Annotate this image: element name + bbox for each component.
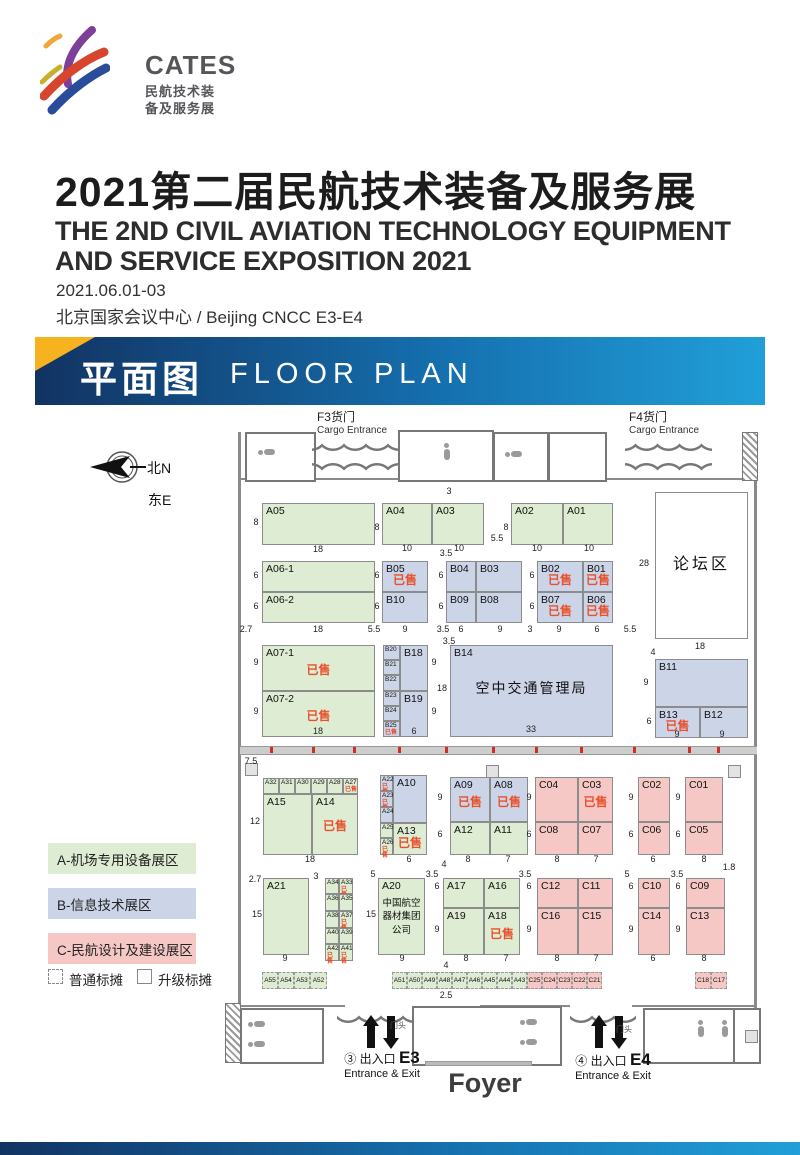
booth-label: C21 — [588, 973, 601, 984]
booth-label: A50 — [408, 973, 421, 984]
fire-marker — [717, 747, 720, 753]
dimension-label: 6 — [406, 854, 411, 864]
dimension-label: 9 — [556, 624, 561, 634]
dimension-label: 6 — [646, 716, 651, 726]
booth-C24: C24 — [542, 972, 557, 989]
dimension-label: 10 — [532, 543, 542, 553]
dimension-label: 8 — [374, 522, 379, 532]
banner-title-cn: 平面图 — [80, 349, 203, 403]
booth-A19: A19 — [443, 908, 484, 955]
booth-A27: A27已售 — [343, 778, 358, 794]
dimension-label: 1.8 — [723, 862, 736, 872]
booth-A40: A40 — [325, 928, 339, 944]
sold-badge: 已售 — [579, 796, 612, 808]
booth-A04: A04 — [382, 503, 432, 545]
booth-label: A03 — [433, 504, 483, 517]
booth-label: A12 — [451, 823, 489, 836]
fire-marker — [688, 747, 691, 753]
compass-north-label: 北N — [147, 458, 171, 478]
dimension-label: 9 — [526, 924, 531, 934]
booth-B01: B01已售 — [583, 561, 613, 592]
person-icon — [505, 450, 523, 458]
booth-label: B24 — [384, 707, 399, 715]
booth-A20: A20中国航空器材集团公司 — [378, 878, 425, 955]
booth-B18: B18 — [400, 645, 428, 691]
booth-A28: A28 — [327, 778, 343, 794]
dimension-label: 3.5 — [426, 869, 439, 879]
booth-label: C12 — [538, 879, 577, 892]
foyer-divider — [425, 1061, 532, 1066]
booth-A15: A15 — [263, 794, 312, 855]
logo-brand: CATES — [145, 52, 236, 78]
booth-A41: A41已售 — [339, 944, 353, 961]
dimension-label: 6 — [675, 829, 680, 839]
booth-label: B18 — [401, 646, 427, 659]
booth-label: C15 — [579, 909, 612, 922]
booth-B04: B04 — [446, 561, 476, 592]
booth-A02: A02 — [511, 503, 563, 545]
dimension-label: 12 — [250, 816, 260, 826]
booth-C23: C23 — [557, 972, 572, 989]
booth-B02: B02已售 — [537, 561, 583, 592]
booth-B21: B21 — [383, 660, 400, 675]
booth-label: A40 — [326, 929, 338, 937]
booth-label: A43 — [513, 973, 526, 984]
f3-cargo-door-arcs — [312, 457, 398, 480]
f3-cargo-door-arcs — [312, 434, 398, 457]
booth-A44: A44 — [497, 972, 512, 989]
booth-label: C07 — [579, 823, 612, 836]
person-icon — [697, 1020, 705, 1038]
dimension-label: 5.5 — [368, 624, 381, 634]
booth-C11: C11 — [578, 878, 613, 908]
dimension-label: 6 — [526, 829, 531, 839]
booth-B10: B10 — [382, 592, 428, 623]
booth-label: A27 — [344, 779, 357, 787]
dimension-label: 15 — [366, 909, 376, 919]
booth-B08: B08 — [476, 592, 522, 623]
dimension-label: 6 — [526, 881, 531, 891]
booth-label: A07-2 — [263, 692, 374, 705]
booth-label: A04 — [383, 504, 431, 517]
booth-label: C24 — [543, 973, 556, 984]
wall-bottom-hatch — [225, 1003, 241, 1063]
dimension-label: 7 — [593, 854, 598, 864]
sold-badge: 已售 — [394, 837, 426, 849]
dimension-label: 8 — [463, 953, 468, 963]
booth-label: A18 — [485, 909, 519, 922]
legend-upgraded-booth-label: 升级标摊 — [158, 969, 212, 989]
dimension-label: 6 — [529, 570, 534, 580]
dimension-label: 7 — [503, 953, 508, 963]
dimension-label: 9 — [628, 792, 633, 802]
booth-label: C16 — [538, 909, 577, 922]
wall-right — [754, 480, 757, 1062]
booth-C25: C25 — [527, 972, 542, 989]
dimension-label: 3.5 — [440, 548, 453, 558]
booth-B06: B06已售 — [583, 592, 613, 623]
dimension-label: 18 — [313, 624, 323, 634]
booth-论坛区: 论坛区 — [655, 492, 748, 639]
dimension-label: 6 — [434, 881, 439, 891]
legend-upgraded-booth-swatch — [137, 969, 152, 984]
booth-B22: B22 — [383, 675, 400, 691]
booth-label: A45 — [483, 973, 496, 984]
dimension-label: 8 — [701, 854, 706, 864]
booth-A29: A29 — [311, 778, 327, 794]
booth-label: A37 — [340, 912, 352, 920]
booth-C10: C10 — [638, 878, 670, 908]
fire-marker — [492, 747, 495, 753]
booth-C02: C02 — [638, 777, 670, 822]
booth-label: A42 — [326, 945, 338, 953]
booth-label: A44 — [498, 973, 511, 984]
booth-label: A25 — [381, 824, 392, 832]
f3-cargo-label: F3货门Cargo Entrance — [317, 408, 387, 436]
booth-A17: A17 — [443, 878, 484, 908]
dimension-label: 18 — [695, 641, 705, 651]
dimension-label: 9 — [431, 657, 436, 667]
booth-A48: A48 — [437, 972, 452, 989]
dimension-label: 2.7 — [240, 624, 253, 634]
room-bottom-left — [240, 1008, 324, 1064]
dimension-label: 5 — [624, 869, 629, 879]
booth-C21: C21 — [587, 972, 602, 989]
booth-B23: B23 — [383, 691, 400, 706]
compass-east-label: 东E — [148, 490, 171, 510]
person-icon — [520, 1018, 538, 1026]
cates-logo: CATES 民航技术装 备及服务展 — [40, 24, 360, 119]
dimension-label: 18 — [313, 544, 323, 554]
booth-A12: A12 — [450, 822, 490, 855]
dimension-label: 7.5 — [245, 756, 258, 766]
sold-badge: 已售 — [485, 928, 519, 940]
person-icon — [443, 443, 451, 461]
booth-B09: B09 — [446, 592, 476, 623]
fire-marker — [398, 747, 401, 753]
dimension-label: 9 — [497, 624, 502, 634]
sold-badge: 已售 — [313, 820, 357, 832]
booth-label: C17 — [712, 973, 726, 984]
booth-label: C10 — [639, 879, 669, 892]
logo-swoosh-icon — [40, 24, 110, 119]
booth-label: B04 — [447, 562, 475, 575]
booth-label: B11 — [656, 660, 747, 673]
dimension-label: 3.5 — [443, 636, 456, 646]
dimension-label: 6 — [650, 854, 655, 864]
sold-badge: 已售 — [383, 574, 427, 586]
fire-marker — [633, 747, 636, 753]
booth-label: A33 — [340, 879, 352, 887]
wall-mid-divider — [240, 746, 757, 755]
booth-label: A41 — [340, 945, 352, 953]
dimension-label: 6 — [650, 953, 655, 963]
booth-label: A05 — [263, 504, 374, 517]
booth-A14: A14已售 — [312, 794, 358, 855]
booth-A45: A45 — [482, 972, 497, 989]
booth-B24: B24 — [383, 706, 400, 721]
booth-label: A09 — [451, 778, 489, 791]
booth-label: C02 — [639, 778, 669, 791]
booth-label: A17 — [444, 879, 483, 892]
dimension-label: 8 — [554, 854, 559, 864]
sold-badge: 已售 — [340, 953, 352, 966]
dimension-label: 6 — [675, 881, 680, 891]
dimension-label: 9 — [675, 924, 680, 934]
booth-label: A35 — [340, 895, 352, 903]
booth-company-name: 空中交通管理局 — [453, 678, 610, 698]
banner-title-en: FLOOR PLAN — [230, 358, 474, 391]
dimension-label: 5.5 — [491, 533, 504, 543]
booth-label: B12 — [701, 708, 747, 721]
booth-label: A36 — [326, 895, 338, 903]
event-venue: 北京国家会议中心 / Beijing CNCC E3-E4 — [56, 303, 363, 328]
booth-A36: A36 — [325, 894, 339, 911]
booth-A31: A31 — [279, 778, 295, 794]
fire-marker — [580, 747, 583, 753]
dimension-label: 3.5 — [437, 624, 450, 634]
dimension-label: 7 — [593, 953, 598, 963]
page-subtitle-2: AND SERVICE EXPOSITION 2021 — [55, 246, 795, 277]
booth-A47: A47 — [452, 972, 467, 989]
booth-B25: B25已售 — [383, 721, 400, 737]
dimension-label: 18 — [313, 726, 323, 736]
booth-label: C05 — [686, 823, 722, 836]
booth-A05: A05 — [262, 503, 375, 545]
booth-label: B20 — [384, 646, 399, 654]
dimension-label: 18 — [305, 854, 315, 864]
floor-plan-poster: CATES 民航技术装 备及服务展 2021第二届民航技术装备及服务展 THE … — [0, 0, 800, 1155]
sold-badge: 已售 — [384, 730, 399, 736]
booth-label: A22 — [381, 776, 392, 784]
booth-label: A01 — [564, 504, 612, 517]
booth-label: A06-2 — [263, 593, 374, 606]
booth-label: C22 — [573, 973, 586, 984]
booth-A52: A52 — [310, 972, 327, 989]
booth-label: C01 — [686, 778, 722, 791]
booth-A32: A32 — [263, 778, 279, 794]
booth-label: C03 — [579, 778, 612, 791]
booth-A51: A51 — [392, 972, 407, 989]
booth-A46: A46 — [467, 972, 482, 989]
booth-C22: C22 — [572, 972, 587, 989]
dimension-label: 9 — [643, 677, 648, 687]
booth-A24: A24 — [380, 807, 393, 823]
booth-A03: A03 — [432, 503, 484, 545]
booth-B11: B11 — [655, 659, 748, 707]
booth-label: A26 — [381, 839, 392, 847]
e4-door-head-label: 门头 — [616, 1024, 632, 1035]
dimension-label: 3.5 — [519, 869, 532, 879]
fire-marker — [445, 747, 448, 753]
dimension-label: 6 — [374, 601, 379, 611]
fire-marker — [270, 747, 273, 753]
dimension-label: 4 — [441, 859, 446, 869]
dimension-label: 3 — [313, 871, 318, 881]
sold-badge: 已售 — [451, 796, 489, 808]
dimension-label: 10 — [584, 543, 594, 553]
booth-label: C23 — [558, 973, 571, 984]
legend-zone-a: A-机场专用设备展区 — [48, 843, 196, 874]
booth-A23: A23已售 — [380, 791, 393, 807]
booth-label: B10 — [383, 593, 427, 606]
booth-C09: C09 — [686, 878, 725, 908]
booth-C06: C06 — [638, 822, 670, 855]
person-icon — [721, 1020, 729, 1038]
e3-door-head-label: 门头 — [390, 1020, 406, 1031]
dimension-label: 7 — [505, 854, 510, 864]
room-top-1 — [245, 432, 316, 482]
wall-bottom-3 — [632, 1005, 757, 1007]
booth-label: B22 — [384, 676, 399, 684]
booth-company-name: 中国航空器材集团公司 — [381, 897, 422, 937]
booth-label: A49 — [423, 973, 436, 984]
dimension-label: 6 — [594, 624, 599, 634]
dimension-label: 9 — [434, 924, 439, 934]
dimension-label: 9 — [719, 729, 724, 739]
dimension-label: 8 — [503, 522, 508, 532]
booth-label: B14 — [451, 646, 612, 659]
sold-badge: 已售 — [344, 787, 357, 793]
sold-badge: 已售 — [538, 574, 582, 586]
booth-label: C14 — [639, 909, 669, 922]
booth-A54: A54 — [278, 972, 294, 989]
booth-label: C08 — [536, 823, 577, 836]
booth-A07-1: A07-1已售 — [262, 645, 375, 691]
booth-label: B08 — [477, 593, 521, 606]
booth-A55: A55 — [262, 972, 278, 989]
booth-label: B21 — [384, 661, 399, 669]
booth-label: A28 — [328, 779, 342, 787]
dimension-label: 4 — [650, 647, 655, 657]
booth-label: A08 — [491, 778, 527, 791]
booth-label: C06 — [639, 823, 669, 836]
booth-A50: A50 — [407, 972, 422, 989]
dimension-label: 9 — [437, 792, 442, 802]
booth-A16: A16 — [484, 878, 520, 908]
dimension-label: 9 — [253, 706, 258, 716]
booth-C07: C07 — [578, 822, 613, 855]
booth-label: A23 — [381, 792, 392, 800]
booth-label: A15 — [264, 795, 311, 808]
booth-A13: A13已售 — [393, 823, 427, 855]
booth-label: C09 — [687, 879, 724, 892]
booth-label: A54 — [279, 973, 293, 984]
booth-A22: A22已售 — [380, 775, 393, 791]
booth-C15: C15 — [578, 908, 613, 955]
dimension-label: 15 — [252, 909, 262, 919]
dimension-label: 8 — [465, 854, 470, 864]
booth-label: A52 — [311, 973, 326, 984]
booth-label: A31 — [280, 779, 294, 787]
bottom-accent-bar — [0, 1142, 800, 1155]
booth-C12: C12 — [537, 878, 578, 908]
booth-label: A32 — [264, 779, 278, 787]
dimension-label: 3.5 — [671, 869, 684, 879]
booth-C04: C04 — [535, 777, 578, 822]
booth-C18: C18 — [695, 972, 711, 989]
dimension-label: 5.5 — [624, 624, 637, 634]
booth-C08: C08 — [535, 822, 578, 855]
booth-label: C04 — [536, 778, 577, 791]
booth-label: A39 — [340, 929, 352, 937]
wall-corner-hatch — [742, 432, 758, 481]
compass-icon — [88, 444, 148, 490]
room-top-4 — [548, 432, 607, 482]
booth-C17: C17 — [711, 972, 727, 989]
booth-label: A21 — [264, 879, 308, 892]
booth-label: C18 — [696, 973, 710, 984]
f4-cargo-door-arcs — [625, 434, 712, 457]
booth-label: A51 — [393, 973, 406, 984]
booth-B07: B07已售 — [537, 592, 583, 623]
booth-label: A47 — [453, 973, 466, 984]
booth-label: A19 — [444, 909, 483, 922]
dimension-label: 2.7 — [249, 874, 262, 884]
wall-left — [238, 432, 241, 1010]
dimension-label: 8 — [253, 517, 258, 527]
event-date: 2021.06.01-03 — [56, 281, 166, 301]
legend-zone-b: B-信息技术展区 — [48, 888, 196, 919]
booth-label: A48 — [438, 973, 451, 984]
logo-tagline-2: 备及服务展 — [145, 101, 236, 118]
booth-C13: C13 — [686, 908, 725, 955]
dimension-label: 6 — [529, 601, 534, 611]
dimension-label: 9 — [526, 792, 531, 802]
booth-C16: C16 — [537, 908, 578, 955]
f4-cargo-label: F4货门Cargo Entrance — [629, 408, 699, 436]
e3-entrance-label: ③ 出入口 E3 Entrance & Exit — [327, 1048, 437, 1080]
booth-A06-2: A06-2 — [262, 592, 375, 623]
sold-badge: 已售 — [584, 574, 612, 586]
dimension-label: 6 — [628, 829, 633, 839]
dimension-label: 6 — [438, 601, 443, 611]
sold-badge: 已售 — [584, 605, 612, 617]
booth-label: A24 — [381, 808, 392, 816]
booth-label: A11 — [491, 823, 527, 836]
booth-label: A16 — [485, 879, 519, 892]
f4-cargo-door-arcs — [625, 457, 712, 480]
dimension-label: 6 — [253, 601, 258, 611]
booth-C05: C05 — [685, 822, 723, 855]
booth-A37: A37已售 — [339, 911, 353, 928]
sold-badge: 已售 — [538, 605, 582, 617]
e4-entrance-label: ④ 出入口 E4 Entrance & Exit — [558, 1050, 668, 1082]
sold-badge: 已售 — [491, 796, 527, 808]
dimension-label: 3 — [527, 624, 532, 634]
booth-B20: B20 — [383, 645, 400, 660]
booth-label: A53 — [295, 973, 309, 984]
booth-A43: A43 — [512, 972, 527, 989]
logo-tagline-1: 民航技术装 — [145, 84, 236, 101]
column-marker — [745, 1030, 758, 1043]
booth-label: B25 — [384, 722, 399, 730]
legend-normal-booth-label: 普通标摊 — [69, 969, 123, 989]
booth-A01: A01 — [563, 503, 613, 545]
booth-A25: A25 — [380, 823, 393, 838]
sold-badge: 已售 — [326, 953, 338, 966]
booth-A08: A08已售 — [490, 777, 528, 822]
fire-marker — [312, 747, 315, 753]
dimension-label: 6 — [438, 570, 443, 580]
booth-C01: C01 — [685, 777, 723, 822]
booth-A33: A33已售 — [339, 878, 353, 894]
dimension-label: 6 — [374, 570, 379, 580]
booth-label: C13 — [687, 909, 724, 922]
person-icon — [248, 1040, 266, 1048]
booth-label: 论坛区 — [656, 493, 747, 638]
column-marker — [728, 765, 741, 778]
